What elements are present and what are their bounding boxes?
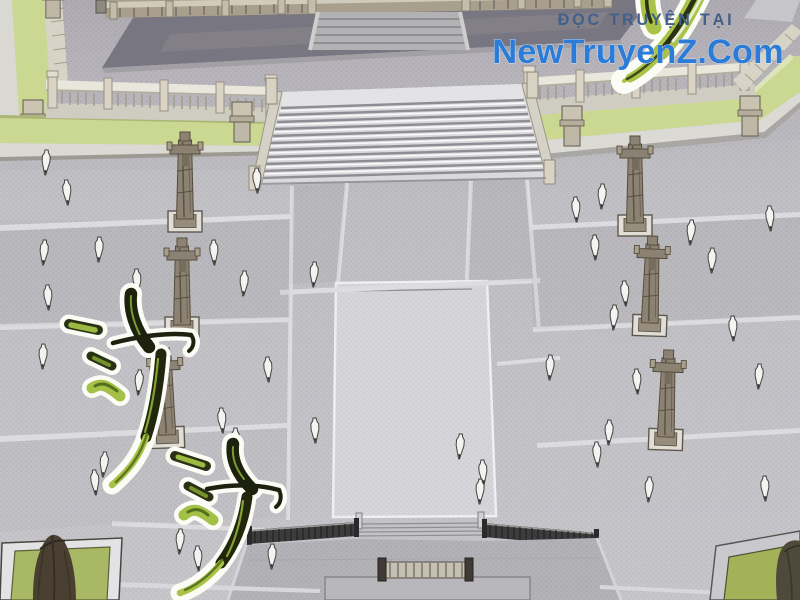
svg-text:ĐỌC TRUYỆN TẠI: ĐỌC TRUYỆN TẠI bbox=[558, 10, 735, 29]
svg-text:NewTruyenZ.Com: NewTruyenZ.Com bbox=[492, 33, 783, 71]
